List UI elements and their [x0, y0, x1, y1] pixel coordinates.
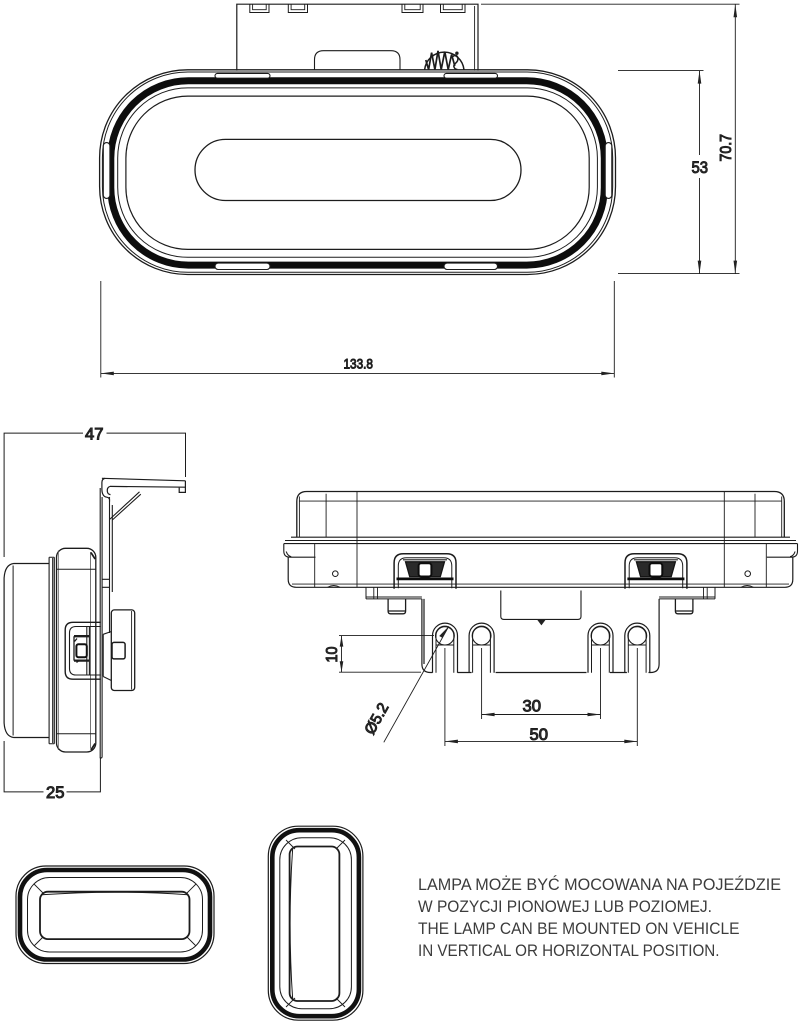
svg-text:IN VERTICAL OR HORIZONTAL POSI: IN VERTICAL OR HORIZONTAL POSITION. — [418, 941, 720, 960]
svg-text:Ø5.2: Ø5.2 — [362, 700, 393, 737]
svg-text:10: 10 — [324, 646, 341, 662]
svg-text:LAMPA MOŻE BYĆ MOCOWANA NA POJ: LAMPA MOŻE BYĆ MOCOWANA NA POJEŹDZIE — [418, 875, 781, 894]
svg-text:50: 50 — [530, 726, 549, 744]
svg-text:W POZYCJI PIONOWEJ LUB POZIOME: W POZYCJI PIONOWEJ LUB POZIOMEJ. — [418, 897, 712, 916]
svg-text:47: 47 — [85, 425, 104, 443]
svg-text:53: 53 — [692, 159, 709, 177]
svg-text:30: 30 — [523, 697, 542, 715]
svg-text:70.7: 70.7 — [718, 134, 735, 162]
svg-text:25: 25 — [46, 784, 65, 802]
svg-text:THE LAMP CAN BE MOUNTED ON VEH: THE LAMP CAN BE MOUNTED ON VEHICLE — [418, 919, 740, 938]
svg-text:133.8: 133.8 — [344, 356, 374, 372]
